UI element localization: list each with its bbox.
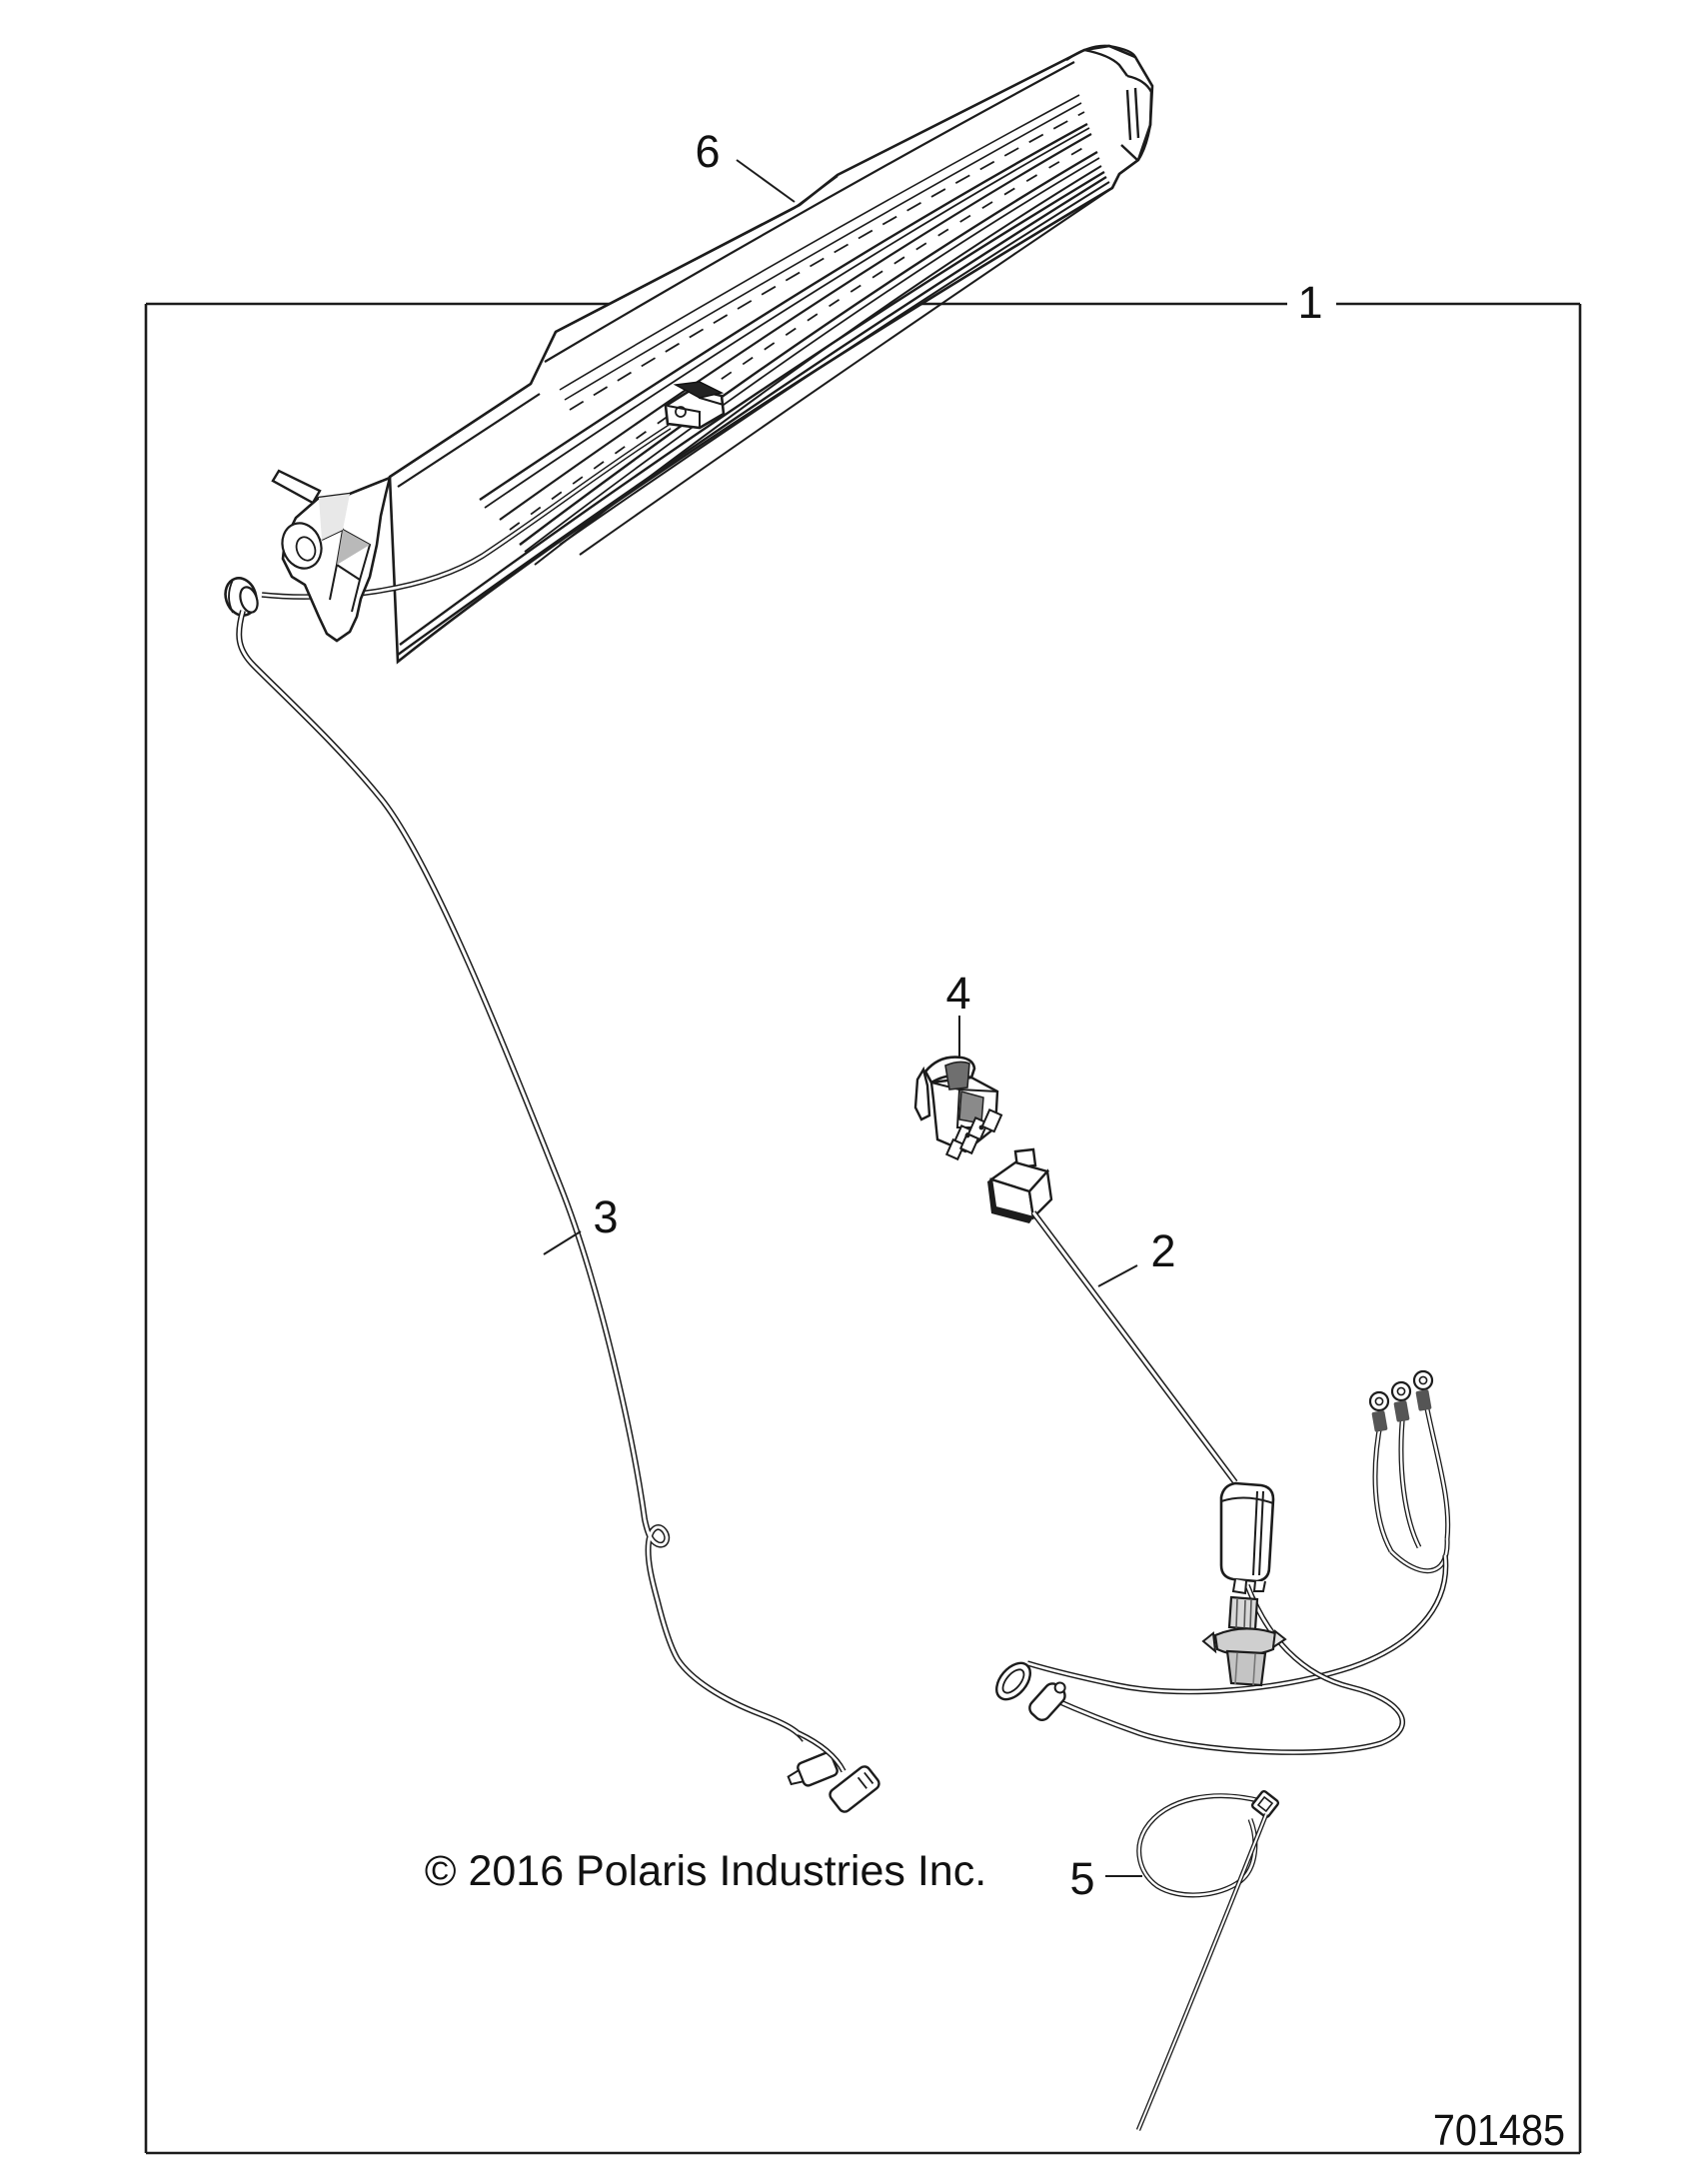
svg-text:3: 3	[593, 1191, 618, 1242]
svg-text:4: 4	[945, 968, 970, 1019]
svg-text:5: 5	[1069, 1853, 1094, 1904]
svg-text:2: 2	[1150, 1225, 1175, 1276]
svg-text:© 2016 Polaris Industries Inc.: © 2016 Polaris Industries Inc.	[425, 1847, 986, 1895]
svg-text:6: 6	[695, 126, 720, 177]
svg-text:1: 1	[1297, 277, 1322, 328]
svg-text:701485: 701485	[1433, 2105, 1565, 2154]
